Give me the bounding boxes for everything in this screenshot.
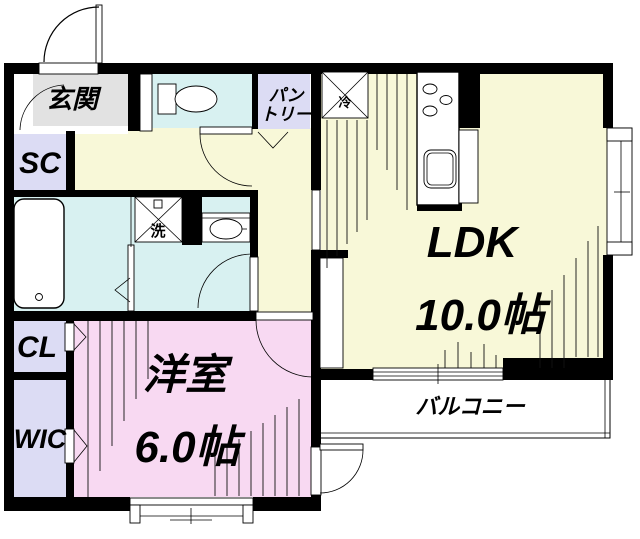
wall-east-lower xyxy=(603,255,613,370)
label-ldk: LDK xyxy=(427,218,521,267)
entry-door-leaf xyxy=(96,5,102,63)
kitchen-counter-side xyxy=(459,130,478,203)
side-door-leaf xyxy=(320,444,363,450)
wall-kitchen-stub xyxy=(459,72,480,128)
entry-opening-sill xyxy=(39,63,98,74)
wall-sc-right xyxy=(66,131,75,196)
ldk-sliding-door xyxy=(312,190,320,250)
entry-door-arc xyxy=(44,7,99,62)
ldk-wall-counter xyxy=(320,258,343,368)
wall-bottom-right xyxy=(253,497,321,511)
wall-stub-ldk xyxy=(311,250,348,258)
toilet-tank-icon xyxy=(158,84,176,114)
label-shoe-closet: SC xyxy=(19,147,62,180)
washer-faucet-icon xyxy=(154,200,162,208)
genkan-side-nook xyxy=(140,74,152,131)
wall-cl-wic-divider xyxy=(10,372,74,380)
toilet-door-leaf xyxy=(200,127,252,134)
floorplan-page: 玄関 SC パン トリー 冷 洗 LDK 10.0帖 洋室 6.0帖 CL WI… xyxy=(0,0,640,539)
ldk-east-window xyxy=(607,128,632,255)
label-cl: CL xyxy=(17,331,57,364)
wic-door-panel xyxy=(65,429,74,463)
label-genkan: 玄関 xyxy=(46,84,102,114)
kitchen-sink-icon xyxy=(424,150,456,188)
label-washing-machine: 洗 xyxy=(150,222,165,240)
toilet-bowl-icon xyxy=(175,86,217,112)
floorplan-drawing: 玄関 SC パン トリー 冷 洗 LDK 10.0帖 洋室 6.0帖 CL WI… xyxy=(0,0,640,539)
side-door-opening xyxy=(311,447,321,495)
label-refrigerator: 冷 xyxy=(338,95,351,110)
label-balcony: バルコニー xyxy=(415,394,526,419)
wall-hall-ldk-upper xyxy=(311,63,321,190)
wall-room-top xyxy=(4,311,256,321)
wall-washer-divider xyxy=(182,197,202,245)
wall-bath-top xyxy=(4,190,258,197)
stove-burner-icon xyxy=(440,96,452,105)
western-room-door-leaf xyxy=(256,312,313,320)
wall-genkan-right xyxy=(128,63,140,131)
room-corridor xyxy=(254,196,313,313)
label-pantry-line1: パン xyxy=(269,86,306,105)
western-room-window xyxy=(130,498,253,505)
label-ldk-size: 10.0帖 xyxy=(415,291,552,340)
label-western-room-size: 6.0帖 xyxy=(134,423,246,472)
wall-bottom-left xyxy=(4,497,130,511)
wall-balcony-right-seg xyxy=(503,358,613,380)
side-door-arc xyxy=(320,450,363,493)
bathtub-drain-icon xyxy=(36,294,43,301)
washroom-door-opening xyxy=(250,257,258,311)
basin-icon xyxy=(210,219,242,239)
wall-toilet-pantry xyxy=(252,63,258,129)
wall-balcony-left-seg xyxy=(313,369,377,380)
room-hallway xyxy=(75,128,313,196)
label-western-room: 洋室 xyxy=(143,351,233,398)
bathtub-icon xyxy=(14,199,64,308)
genkan-step xyxy=(33,126,128,134)
wall-washroom-right xyxy=(250,190,258,257)
label-pantry-line2: トリー xyxy=(261,105,313,124)
stove-burner-icon xyxy=(423,84,437,94)
wall-west xyxy=(4,63,14,511)
wall-balcony-west xyxy=(311,380,320,440)
stove-burner-icon xyxy=(423,106,437,116)
label-wic: WIC xyxy=(14,424,67,454)
wall-east-upper xyxy=(603,63,613,128)
cl-door-panel xyxy=(65,323,74,351)
